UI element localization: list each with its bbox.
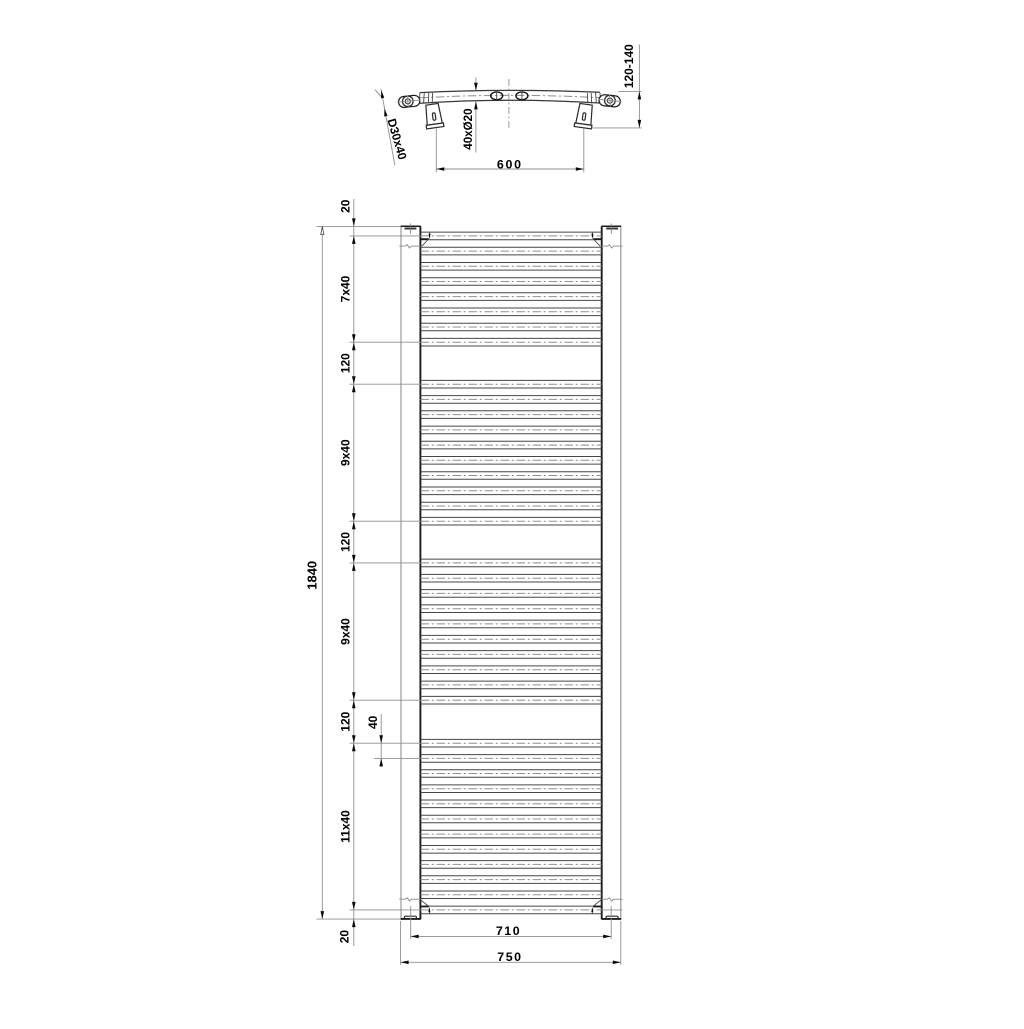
- svg-text:9x40: 9x40: [339, 618, 353, 645]
- svg-text:20: 20: [339, 199, 353, 213]
- svg-text:9x40: 9x40: [339, 439, 353, 466]
- svg-text:1840: 1840: [305, 561, 320, 590]
- svg-text:120: 120: [339, 711, 353, 731]
- svg-text:120: 120: [339, 353, 353, 373]
- svg-text:7x40: 7x40: [339, 275, 353, 302]
- svg-text:20: 20: [338, 930, 352, 944]
- svg-text:750: 750: [497, 950, 522, 964]
- svg-text:11x40: 11x40: [339, 810, 353, 843]
- svg-text:40xØ20: 40xØ20: [462, 108, 475, 149]
- svg-text:710: 710: [496, 924, 521, 938]
- svg-text:40: 40: [366, 715, 380, 729]
- svg-text:120-140: 120-140: [622, 44, 636, 88]
- svg-text:600: 600: [497, 157, 523, 171]
- svg-text:120: 120: [339, 532, 353, 552]
